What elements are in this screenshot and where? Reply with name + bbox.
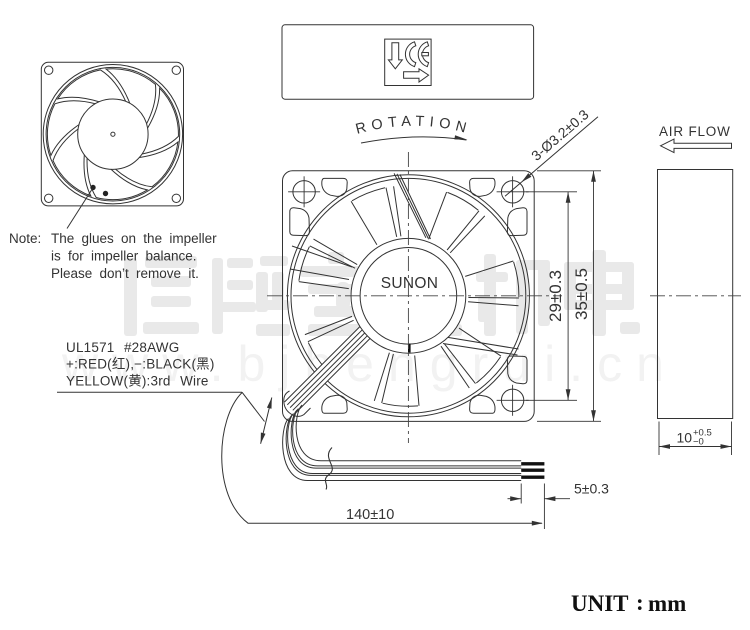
svg-text:3-Ø3.2±0.3: 3-Ø3.2±0.3 <box>528 106 592 164</box>
svg-text:5±0.3: 5±0.3 <box>574 481 609 497</box>
svg-text:Note:The glues on the impeller: Note:The glues on the impelleris for imp… <box>9 231 217 281</box>
svg-text:10: 10 <box>677 430 693 446</box>
svg-text:AIR FLOW: AIR FLOW <box>659 124 731 139</box>
svg-text:29±0.3: 29±0.3 <box>546 270 565 322</box>
svg-text:UNIT:mm: UNIT:mm <box>571 590 686 616</box>
svg-text:−0: −0 <box>693 437 704 448</box>
svg-text:35±0.5: 35±0.5 <box>572 268 591 320</box>
svg-text:140±10: 140±10 <box>346 507 394 523</box>
svg-text:ROTATION: ROTATION <box>354 114 473 138</box>
svg-text:SUNON: SUNON <box>381 275 438 292</box>
